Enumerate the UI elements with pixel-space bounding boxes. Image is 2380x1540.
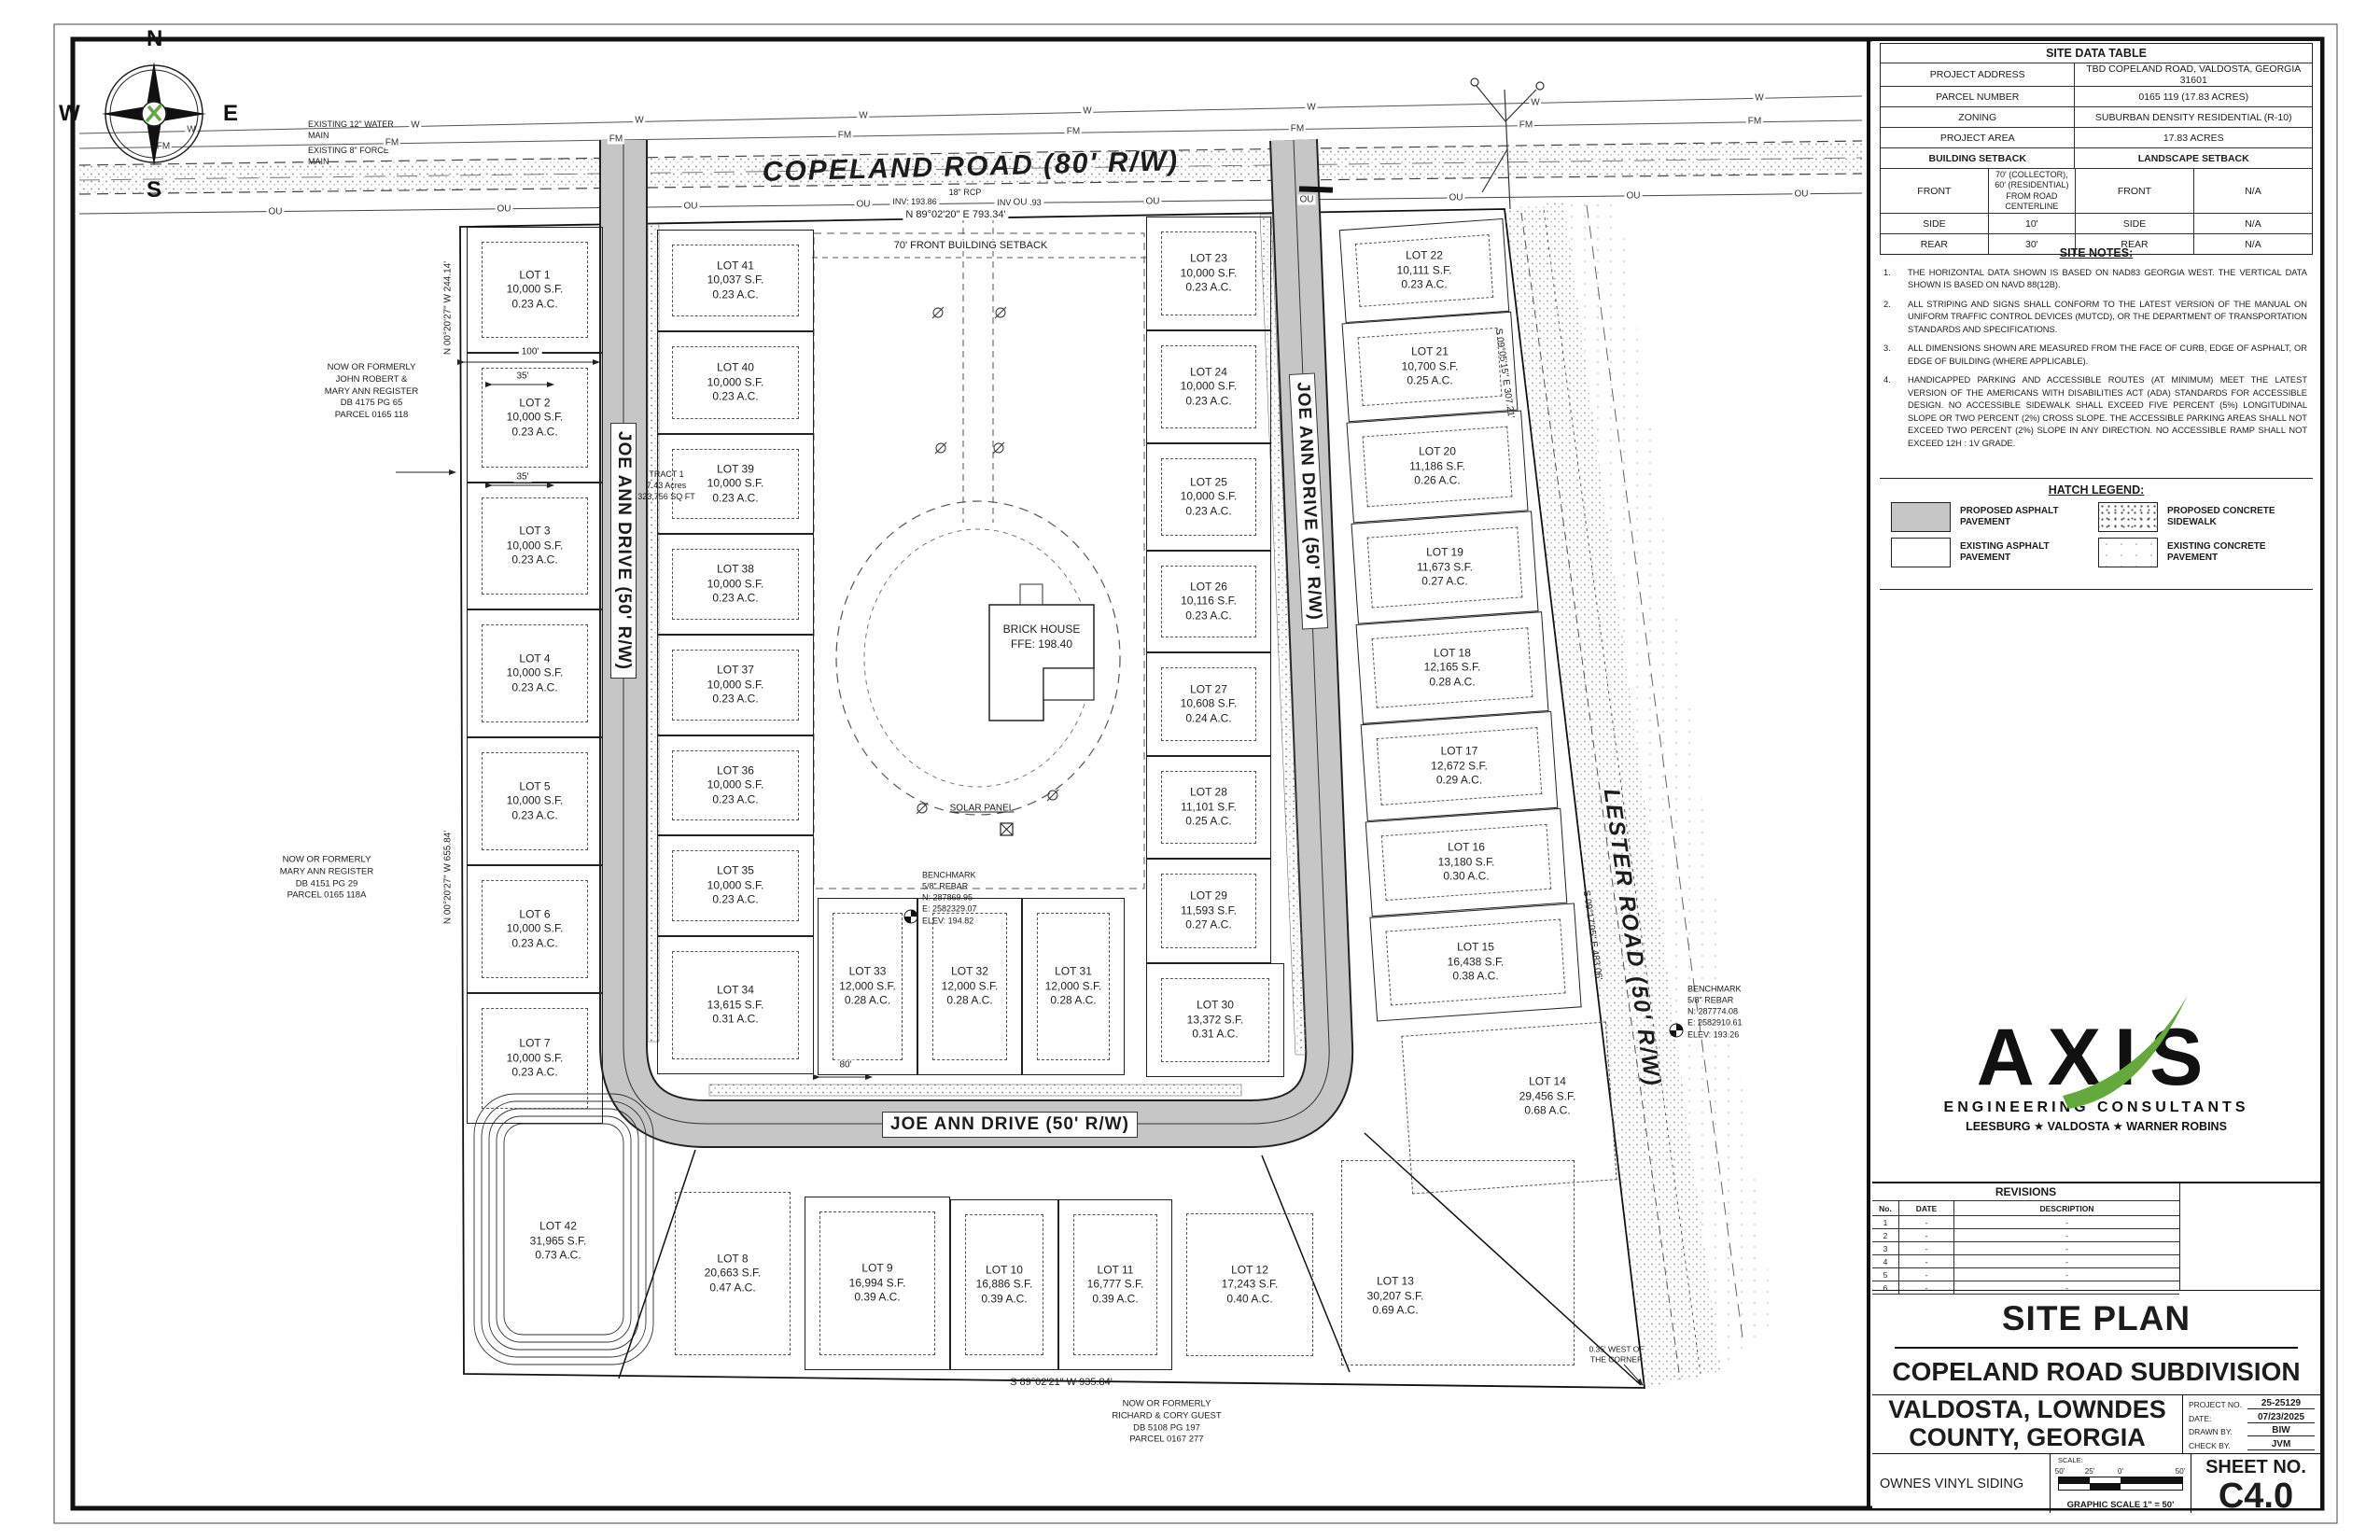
existing-force-main: EXISTING 8" FORCEMAIN [308,145,389,167]
utility-label-ou: OU [1012,198,1029,208]
utility-label-w: W [857,111,869,121]
utility-label-ou: OU [496,204,513,215]
project-field: CHECK BY.JVM [2189,1439,2315,1450]
road-label-joe-ann-west: JOE ANN DRIVE (50' R/W) [610,423,637,679]
utility-label-fm: FM [836,131,853,141]
inv-west: INV: 193.86 [889,197,939,206]
site-note-item: 1.THE HORIZONTAL DATA SHOWN IS BASED ON … [1880,267,2313,292]
subdivision-name: COPELAND ROAD SUBDIVISION [1872,1349,2320,1395]
firm-logo: AXIS ENGINEERING CONSULTANTS LEESBURG ★ … [1872,1017,2320,1133]
dim-35-a: 35' [513,371,531,382]
sdt-cell: SIDE [2076,214,2194,233]
bearing-lester-lower: S 09°17'05" E 483.06' [1581,889,1603,981]
utility-label-ou: OU [1625,191,1643,202]
graphic-scale-label: GRAPHIC SCALE 1" = 50' [2051,1500,2191,1510]
legend-item-proposed-asphalt: PROPOSED ASPHALT PAVEMENT [1891,502,2094,532]
utility-label-fm: FM [384,138,400,148]
sdt-cell: 10' [1989,214,2076,233]
axis-word-text: AXIS [1977,1013,2217,1102]
hatch-legend: HATCH LEGEND: PROPOSED ASPHALT PAVEMENTP… [1880,478,2313,590]
owner-note: OWNES VINYL SIDING [1872,1454,2051,1513]
solar-panel-label: SOLAR PANEL [950,804,1015,814]
owner-register-south: NOW OR FORMERLYMARY ANN REGISTERDB 4151 … [280,854,373,902]
rev-col-desc: DESCRIPTION [1954,1204,2179,1213]
legend-swatch-proposed-concrete [2098,502,2158,532]
existing-water-main: EXISTING 12" WATERMAIN [308,119,394,141]
revisions-title: REVISIONS [1872,1183,2179,1201]
sdt-label: PROJECT ADDRESS [1881,63,2075,86]
utility-label-w: W [409,120,421,131]
sdt-cell: N/A [2194,169,2312,213]
benchmark-center: BENCHMARK5/8" REBARN: 287869.95E: 258232… [922,870,977,927]
tract-note: TRACT 17.43 Acres323,756 SQ FT [637,469,695,502]
legend-swatch-existing-asphalt [1891,538,1951,567]
brick-house-label: BRICK HOUSEFFE: 198.40 [1003,622,1081,651]
project-location: VALDOSTA, LOWNDES COUNTY, GEORGIA [1872,1395,2183,1453]
bearing-north: N 89°02'20" E 793.34' [903,209,1008,220]
sdt-label: PROJECT AREA [1881,128,2075,147]
compass-w: W [59,101,80,127]
utility-label-fm: FM [608,134,624,145]
sheet-no-value: C4.0 [2191,1478,2320,1514]
setback-note: 70' FRONT BUILDING SETBACK [891,240,1051,251]
scale-tick: 50' [2055,1467,2065,1476]
title-block: SITE PLAN COPELAND ROAD SUBDIVISION VALD… [1872,1290,2320,1508]
utility-label-ou: OU [1144,197,1162,207]
revision-row: 4-- [1872,1255,2179,1268]
location-line2: COUNTY, GEORGIA [1909,1424,2146,1452]
utility-label-w: W [1753,93,1765,104]
site-data-title: SITE DATA TABLE [1881,44,2312,63]
benchmark-east: BENCHMARK5/8" REBARN: 287774.08E: 258291… [1687,984,1743,1041]
road-label-joe-ann-south: JOE ANN DRIVE (50' R/W) [882,1112,1138,1138]
bearing-west-lower: N 00°20'27" W 655.84' [443,831,454,924]
rev-col-date: DATE [1899,1201,1954,1215]
title-panel: SITE DATA TABLE PROJECT ADDRESSTBD COPEL… [1872,41,2320,1508]
axis-wordmark: AXIS [1977,1017,2217,1098]
site-data-table: SITE DATA TABLE PROJECT ADDRESSTBD COPEL… [1880,43,2313,255]
site-notes-title: SITE NOTES: [1880,246,2313,259]
revision-row: 3-- [1872,1242,2179,1255]
bearing-lester-upper: S 09°05'15" E 307.21' [1493,328,1516,419]
sdt-value: 0165 119 (17.83 ACRES) [2075,91,2312,103]
legend-swatch-proposed-asphalt [1891,502,1951,532]
bearing-south: S 89°02'21" W 935.84' [1010,1377,1113,1388]
sdt-cell: 70' (COLLECTOR), 60' (RESIDENTIAL) FROM … [1989,169,2076,213]
scale-tick: 0' [2118,1467,2123,1476]
utility-label-ou: OU [1448,193,1465,203]
sheet-title: SITE PLAN [1872,1291,2320,1347]
revision-row: 5-- [1872,1268,2179,1281]
dim-80: 80' [836,1060,854,1071]
project-fields: PROJECT NO.25-25129DATE:07/23/2025DRAWN … [2183,1395,2320,1453]
compass-s: S [147,177,161,203]
graphic-scale: SCALE: 50' 25' 0' 50' [2051,1454,2191,1513]
site-note-item: 3.ALL DIMENSIONS SHOWN ARE MEASURED FROM… [1880,343,2313,368]
utility-label-fm: FM [1518,120,1534,131]
revision-row: 2-- [1872,1229,2179,1242]
utility-label-ou: OU [267,207,285,217]
utility-label-ou: OU [1793,189,1811,200]
rev-col-no: No. [1872,1201,1899,1215]
scale-tick: 25' [2085,1467,2094,1476]
site-plan-sheet: LOT 110,000 S.F.0.23 A.C.LOT 210,000 S.F… [0,0,2380,1540]
sdt-cell: N/A [2194,214,2312,233]
legend-item-existing-asphalt: EXISTING ASPHALT PAVEMENT [1891,538,2094,567]
sdt-cell: SIDE [1881,214,1989,233]
utility-label-fm: FM [1065,127,1082,137]
legend-item-proposed-concrete: PROPOSED CONCRETE SIDEWALK [2098,502,2302,532]
sheet-no-label: SHEET NO. [2191,1457,2320,1478]
dim-100: 100' [519,347,542,357]
dim-35-b: 35' [513,472,531,483]
utility-label-w: W [1081,106,1093,117]
compass-n: N [147,26,162,52]
bearing-west-upper: N 00°20'27" W 244.14' [443,261,454,355]
project-field: PROJECT NO.25-25129 [2189,1398,2315,1409]
sdt-setback-hdr: BUILDING SETBACK [1881,148,2075,168]
sheet-number-cell: SHEET NO. C4.0 [2191,1454,2320,1513]
scale-tick: 50' [2176,1467,2185,1476]
hatch-legend-title: HATCH LEGEND: [1880,483,2313,497]
utility-label-fm: FM [1289,124,1306,134]
road-label-joe-ann-east: JOE ANN DRIVE (50' R/W) [1289,373,1328,630]
compass-rose: N S E W [89,49,219,179]
firm-cities: LEESBURG ★ VALDOSTA ★ WARNER ROBINS [1872,1119,2320,1133]
legend-item-existing-concrete: EXISTING CONCRETE PAVEMENT [2098,538,2302,567]
sdt-value: SUBURBAN DENSITY RESIDENTIAL (R-10) [2075,112,2312,123]
utility-label-w: W [1529,98,1541,108]
road-label-lester: LESTER ROAD (50' R/W) [1598,787,1666,1088]
owner-guest: NOW OR FORMERLYRICHARD & CORY GUESTDB 51… [1112,1398,1221,1446]
site-notes: SITE NOTES: 1.THE HORIZONTAL DATA SHOWN … [1880,243,2313,474]
scale-word: SCALE: [2058,1456,2083,1464]
sdt-setback-hdr: LANDSCAPE SETBACK [2075,153,2312,164]
project-field: DATE:07/23/2025 [2189,1412,2315,1423]
utility-label-ou: OU [855,200,873,210]
utility-label-ou: OU [682,202,700,212]
corner-note: 0.35' WEST OFTHE CORNER [1589,1345,1644,1366]
sdt-value: 17.83 ACRES [2075,133,2312,144]
sdt-label: ZONING [1881,107,2075,127]
revision-row: 1-- [1872,1216,2179,1229]
rcp-label: 18" RCP [946,188,985,197]
utility-label-ou: OU [1298,195,1316,205]
compass-e: E [223,101,238,127]
revisions: REVISIONS No. DATE DESCRIPTION 1--2--3--… [1872,1182,2320,1290]
legend-swatch-existing-concrete [2098,538,2158,567]
location-line1: VALDOSTA, LOWNDES [1888,1396,2166,1424]
sdt-cell: FRONT [2076,169,2194,213]
sdt-label: PARCEL NUMBER [1881,87,2075,106]
owner-register-north: NOW OR FORMERLYJOHN ROBERT &MARY ANN REG… [325,362,418,422]
site-note-item: 2.ALL STRIPING AND SIGNS SHALL CONFORM T… [1880,299,2313,336]
project-field: DRAWN BY.BIW [2189,1425,2315,1436]
sdt-value: TBD COPELAND ROAD, VALDOSTA, GEORGIA 316… [2075,63,2312,86]
utility-label-w: W [633,116,645,126]
site-note-item: 4.HANDICAPPED PARKING AND ACCESSIBLE ROU… [1880,374,2313,450]
sdt-cell: FRONT [1881,169,1989,213]
road-label-copeland: COPELAND ROAD (80' R/W) [762,146,1179,189]
utility-label-fm: FM [1746,117,1763,127]
utility-label-w: W [1305,103,1317,113]
